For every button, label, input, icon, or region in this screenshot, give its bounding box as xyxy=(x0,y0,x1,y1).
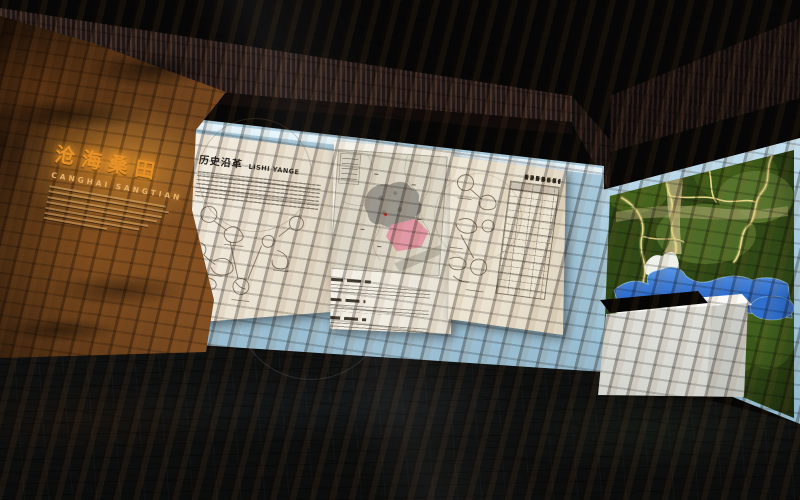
exhibit-hall-render: 历史沿革 LISHI YANGE xyxy=(0,0,800,500)
light-streak-overlay xyxy=(0,0,800,500)
